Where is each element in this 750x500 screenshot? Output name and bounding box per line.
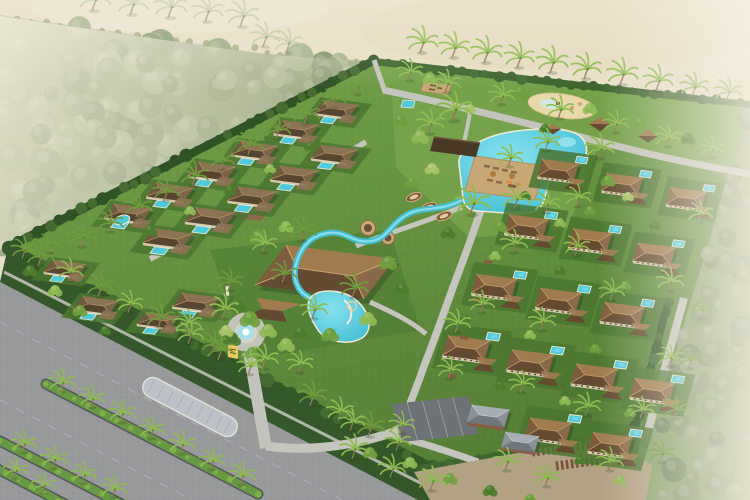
hedge-shrub	[297, 92, 306, 101]
hedge-shrub	[273, 382, 284, 393]
hedge-shrub	[180, 149, 193, 162]
median-shrub	[28, 484, 34, 490]
hedge-shrub	[223, 130, 232, 139]
median-shrub	[143, 433, 148, 438]
hedge-shrub	[193, 146, 201, 154]
villa	[525, 276, 602, 328]
resort-rendering-stage	[0, 0, 750, 500]
hedge-shrub	[54, 215, 65, 226]
small-pool	[401, 100, 415, 108]
hedge-shrub	[276, 102, 288, 114]
hedge-shrub	[162, 163, 171, 172]
umbrella	[509, 173, 515, 179]
fountain-splash	[243, 329, 250, 336]
hedge-shrub	[119, 182, 130, 193]
villa	[461, 262, 538, 314]
hedge-shrub	[389, 443, 401, 455]
pool-shallow	[558, 137, 576, 147]
hedge-shrub	[170, 155, 181, 166]
hedge-shrub	[260, 373, 274, 387]
resort-master-plan-rendering	[0, 0, 750, 500]
villa	[496, 337, 576, 391]
median-shrub	[72, 396, 77, 401]
median-shrub	[157, 441, 161, 445]
hedge-shrub	[254, 114, 264, 124]
median-shrub	[128, 425, 133, 430]
hedge-shrub	[75, 202, 87, 214]
hedge-shrub	[87, 198, 97, 208]
hedge-shrub	[215, 135, 224, 144]
top-fade-overlay	[0, 0, 750, 90]
umbrella	[490, 171, 496, 177]
hedge-shrub	[32, 226, 45, 239]
hedge-shrub	[150, 166, 161, 177]
hedge-shrub	[129, 180, 138, 189]
hedge-shrub	[204, 140, 213, 149]
hedge-shrub	[265, 109, 274, 118]
parking-lot	[392, 396, 478, 442]
hedge-shrub	[65, 209, 76, 220]
hedge-shrub	[285, 387, 297, 399]
hedge-shrub	[140, 173, 152, 185]
median-shrub	[44, 382, 49, 387]
median-shrub	[100, 410, 106, 416]
median-shrub	[185, 455, 189, 459]
hedge-shrub	[320, 408, 331, 419]
hedge-shrub	[430, 461, 436, 467]
median-shrub	[255, 491, 261, 497]
hedge-shrub	[108, 189, 118, 199]
hedge-shrub	[96, 192, 109, 205]
hedge-shrub	[287, 98, 297, 108]
